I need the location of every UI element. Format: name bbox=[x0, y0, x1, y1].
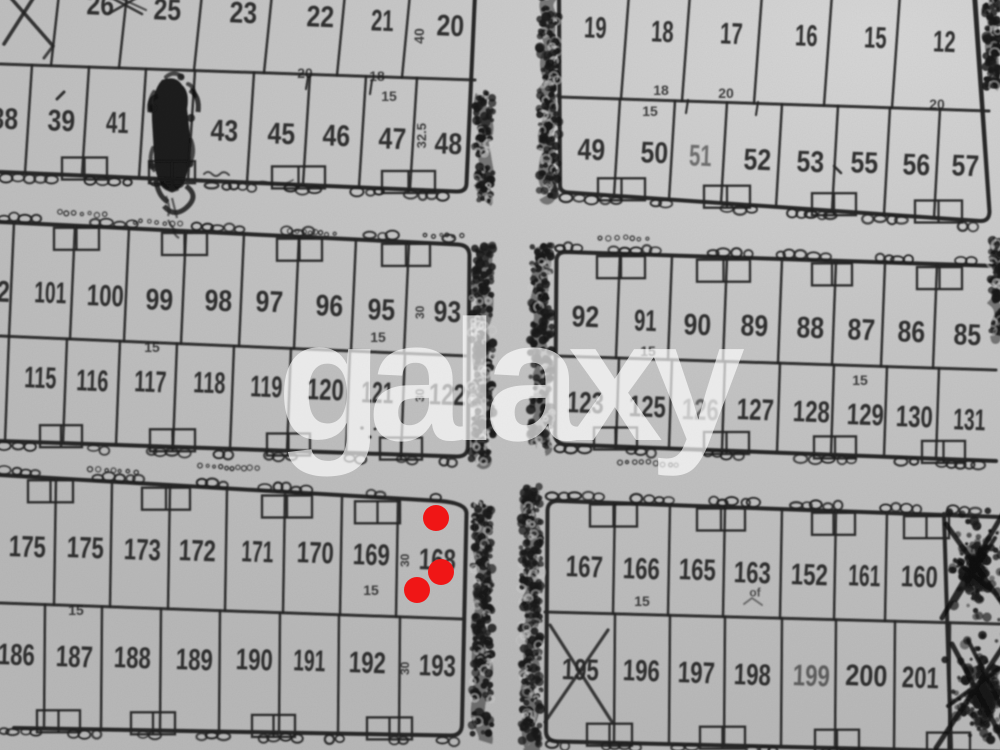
svg-text:galaxy: galaxy bbox=[277, 285, 745, 477]
